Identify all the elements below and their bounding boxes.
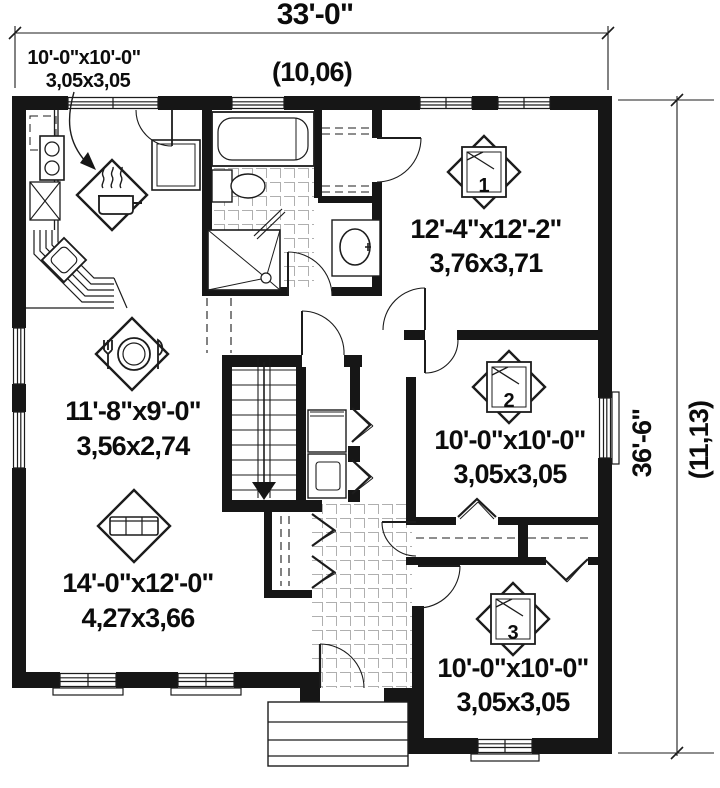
- staircase: [232, 358, 296, 500]
- laundry-wall-top: [350, 367, 360, 410]
- porch-steps: [268, 702, 408, 766]
- kitchen-icon: [77, 160, 147, 230]
- stair-top-wall-left: [222, 355, 302, 367]
- living-dim-metric: 4,27x3,66: [82, 603, 196, 633]
- wall-bottom-left: [12, 672, 314, 688]
- laundry-wall-mid: [348, 446, 360, 462]
- living-dim-imperial: 14'-0"x12'-0": [62, 568, 213, 598]
- stair-bottom-wall: [222, 500, 322, 512]
- vestibule-left-wall: [300, 672, 320, 702]
- top-width-metric: (10,06): [272, 57, 352, 87]
- bedroom1-number: 1: [478, 175, 489, 197]
- bedroom3-window: [471, 738, 539, 761]
- bedroom3-dim-imperial: 10'-0"x10'-0": [437, 653, 588, 683]
- dining-icon: [96, 318, 168, 390]
- bedroom1-door: [377, 138, 421, 182]
- sofa-icon: [98, 490, 170, 562]
- tub-closet-wall: [314, 110, 322, 198]
- side-height-imperial: 36'-6": [627, 409, 657, 477]
- bed1-bed2-divider-right: [457, 330, 612, 340]
- kitchen-dim-imperial: 10'-0"x10'-0": [27, 47, 140, 69]
- bedroom3-number: 3: [507, 622, 518, 644]
- floor-plan-drawing: 1 2 3 12'-4"x12'-2" 3,76x3,71 11'-8"x9'-…: [0, 0, 720, 788]
- bedroom2-left-wall: [406, 377, 416, 525]
- bathroom-window: [232, 96, 284, 110]
- dining-window-a: [12, 328, 26, 384]
- wall-left: [12, 96, 26, 688]
- entry-tile-floor: [312, 503, 412, 688]
- closet-top-wall-left: [416, 517, 456, 525]
- kitchen-label-arrowhead: [80, 152, 96, 170]
- linen-closet-shelf-wall: [318, 196, 380, 203]
- bedroom1-window-a: [420, 96, 472, 110]
- bedroom2-dim-metric: 3,05x3,05: [454, 459, 568, 489]
- laundry-closet: [308, 408, 373, 498]
- side-height-metric: (11,13): [684, 401, 714, 479]
- bedroom3-icon: 3: [477, 583, 549, 655]
- kitchen-hall-opening: [207, 298, 231, 353]
- fridge-icon: [152, 140, 200, 190]
- bedroom1-dim-imperial: 12'-4"x12'-2": [410, 214, 561, 244]
- linen-closet-shelves: [322, 128, 374, 192]
- top-width-imperial: 33'-0": [277, 0, 354, 31]
- dining-dim-metric: 3,56x2,74: [77, 431, 191, 461]
- bedroom1-dim-metric: 3,76x3,71: [430, 248, 544, 278]
- stair-left-wall: [222, 355, 232, 512]
- stair-right-wall: [296, 367, 306, 512]
- bedroom2-window: [598, 392, 619, 464]
- floor-plan: 1 2 3 12'-4"x12'-2" 3,76x3,71 11'-8"x9'-…: [0, 0, 720, 788]
- kitchen-window: [68, 96, 158, 110]
- bedroom2-dim-imperial: 10'-0"x10'-0": [434, 425, 585, 455]
- bedroom2-icon: 2: [473, 351, 545, 423]
- bedroom1-hall-door: [383, 288, 425, 330]
- entry-closet-left-wall: [264, 512, 272, 598]
- stair-top-wall-right: [344, 355, 362, 367]
- stove-icon: [40, 136, 64, 180]
- closet-bottom-wall-left: [406, 557, 546, 565]
- living-window-b: [171, 672, 241, 695]
- bedroom3-door: [418, 566, 460, 608]
- entry-closet-bottom-wall: [264, 590, 312, 598]
- closet-top-wall-right: [498, 517, 612, 525]
- bedroom1-left-wall-top: [372, 110, 382, 138]
- dishwasher-icon: [30, 182, 60, 220]
- stair-down-arrow: [252, 482, 276, 500]
- kitchen-dim-metric: 3,05x3,05: [46, 70, 131, 92]
- bedroom2-door: [425, 340, 458, 373]
- living-window-a: [53, 672, 123, 695]
- bedroom1-window-b: [498, 96, 550, 110]
- kitchen-sink-icon: [42, 238, 86, 282]
- closet-bottom-wall-right: [588, 557, 612, 565]
- basement-door: [302, 311, 344, 355]
- bedroom3-dim-metric: 3,05x3,05: [457, 687, 571, 717]
- bedroom3-left-wall: [412, 606, 424, 754]
- dining-window-b: [12, 412, 26, 468]
- bed1-bed2-divider-left: [404, 330, 425, 340]
- bedroom2-number: 2: [503, 390, 514, 412]
- dining-dim-imperial: 11'-8"x9'-0": [65, 396, 200, 426]
- bedroom1-icon: 1: [448, 136, 520, 208]
- vanity-sink-icon: [332, 220, 380, 276]
- bathtub-icon: [212, 112, 314, 166]
